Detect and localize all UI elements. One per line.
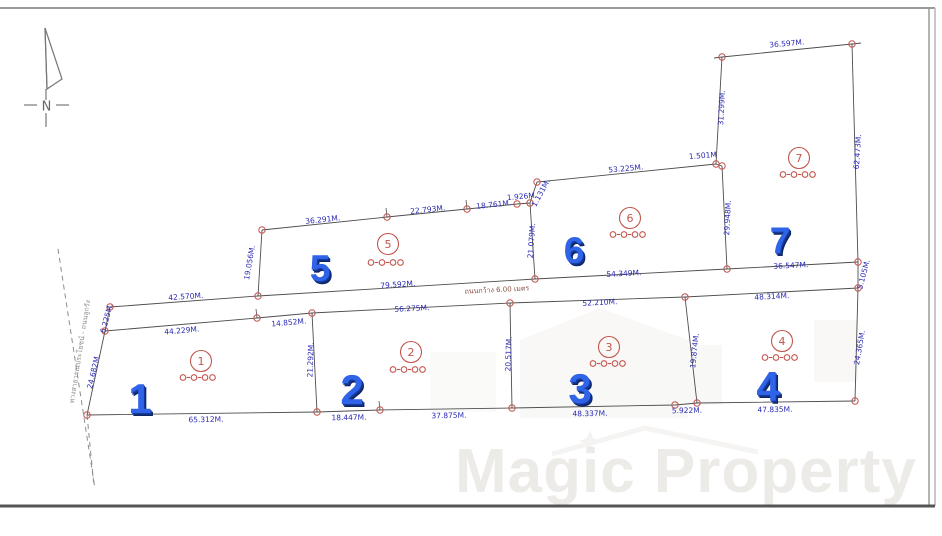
plot-4: 4444 (756, 331, 797, 413)
circled-plot-number-2: 2 (408, 346, 415, 359)
plan-sheet: Magic Property N 42. (0, 0, 942, 536)
dimension-label: 56.275M. (394, 303, 430, 314)
dimension-label: 36.291M. (305, 213, 341, 226)
circled-plot-number-7: 7 (796, 152, 803, 165)
plot-6: 6666 (564, 208, 646, 274)
dimension-label: 62.473M. (852, 134, 863, 170)
internal-road-label: ถนนกว้าง 6.00 เมตร (464, 284, 529, 295)
plot-number-2: 2 (340, 366, 363, 413)
plot-6-area-notation (610, 232, 645, 238)
dimension-label: 19.056M. (242, 244, 257, 280)
dimension-label: 31.299M. (716, 90, 727, 126)
dimension-label: 24.682M. (85, 353, 102, 389)
north-compass: N (24, 28, 69, 127)
watermark-building-silhouettes (430, 308, 858, 454)
plot-7-area-notation (780, 172, 815, 178)
dimension-label: 20.517M. (503, 336, 513, 371)
dimension-label: 44.229M. (164, 324, 200, 336)
sheet-border (0, 8, 935, 506)
dimension-label: 1.501M (689, 150, 718, 161)
plot-number-6: 6 (564, 230, 585, 271)
survey-plan-svg: N 42.570M.79.592M.54.349M.36.547M.44.229… (0, 0, 942, 536)
compass-n-label: N (42, 100, 52, 115)
circled-plot-number-5: 5 (385, 238, 392, 251)
dimension-label: 5.922M. (672, 406, 702, 416)
dimension-label: 22.793M. (410, 203, 446, 216)
circled-plot-number-4: 4 (779, 335, 786, 348)
dimension-label: 6.225M. (98, 303, 115, 335)
dimension-label: 21.292M. (305, 342, 315, 377)
dimension-label: 65.312M. (188, 415, 223, 425)
dimension-label: 14.852M. (271, 316, 307, 328)
plot-1-area-notation (180, 375, 215, 381)
circled-plot-number-1: 1 (198, 355, 205, 368)
dimension-label: 48.314M. (754, 291, 790, 302)
dimension-label: 79.592M. (380, 279, 416, 290)
plot-5-area-notation (368, 260, 403, 266)
dimension-label: 36.597M. (769, 37, 805, 49)
dimension-label: 37.875M. (431, 411, 466, 421)
plot-4-area-notation (762, 355, 797, 361)
dimension-label: 21.079M. (526, 223, 537, 259)
plot-2-area-notation (390, 367, 425, 373)
dimension-label: 52.210M. (582, 297, 618, 308)
plot-number-7: 7 (770, 220, 791, 261)
plot-number-4: 4 (756, 363, 780, 410)
plot-number-1: 1 (128, 375, 151, 422)
survey-drawing: 42.570M.79.592M.54.349M.36.547M.44.229M.… (58, 37, 872, 489)
plot-number-3: 3 (568, 365, 591, 412)
plot-7: 7777 (770, 148, 816, 264)
circled-plot-number-6: 6 (627, 212, 634, 225)
dimension-label: 54.349M. (606, 268, 642, 279)
dimension-label: 29.948M. (722, 200, 733, 236)
north-arrow-icon (45, 28, 62, 89)
circled-plot-number-3: 3 (606, 341, 613, 354)
dimension-label: 53.225M. (608, 162, 644, 174)
watermark-star-icon (579, 430, 601, 452)
boundary-lines (58, 43, 861, 489)
plot-2: 2222 (340, 342, 425, 416)
plot-number-5: 5 (310, 248, 331, 289)
